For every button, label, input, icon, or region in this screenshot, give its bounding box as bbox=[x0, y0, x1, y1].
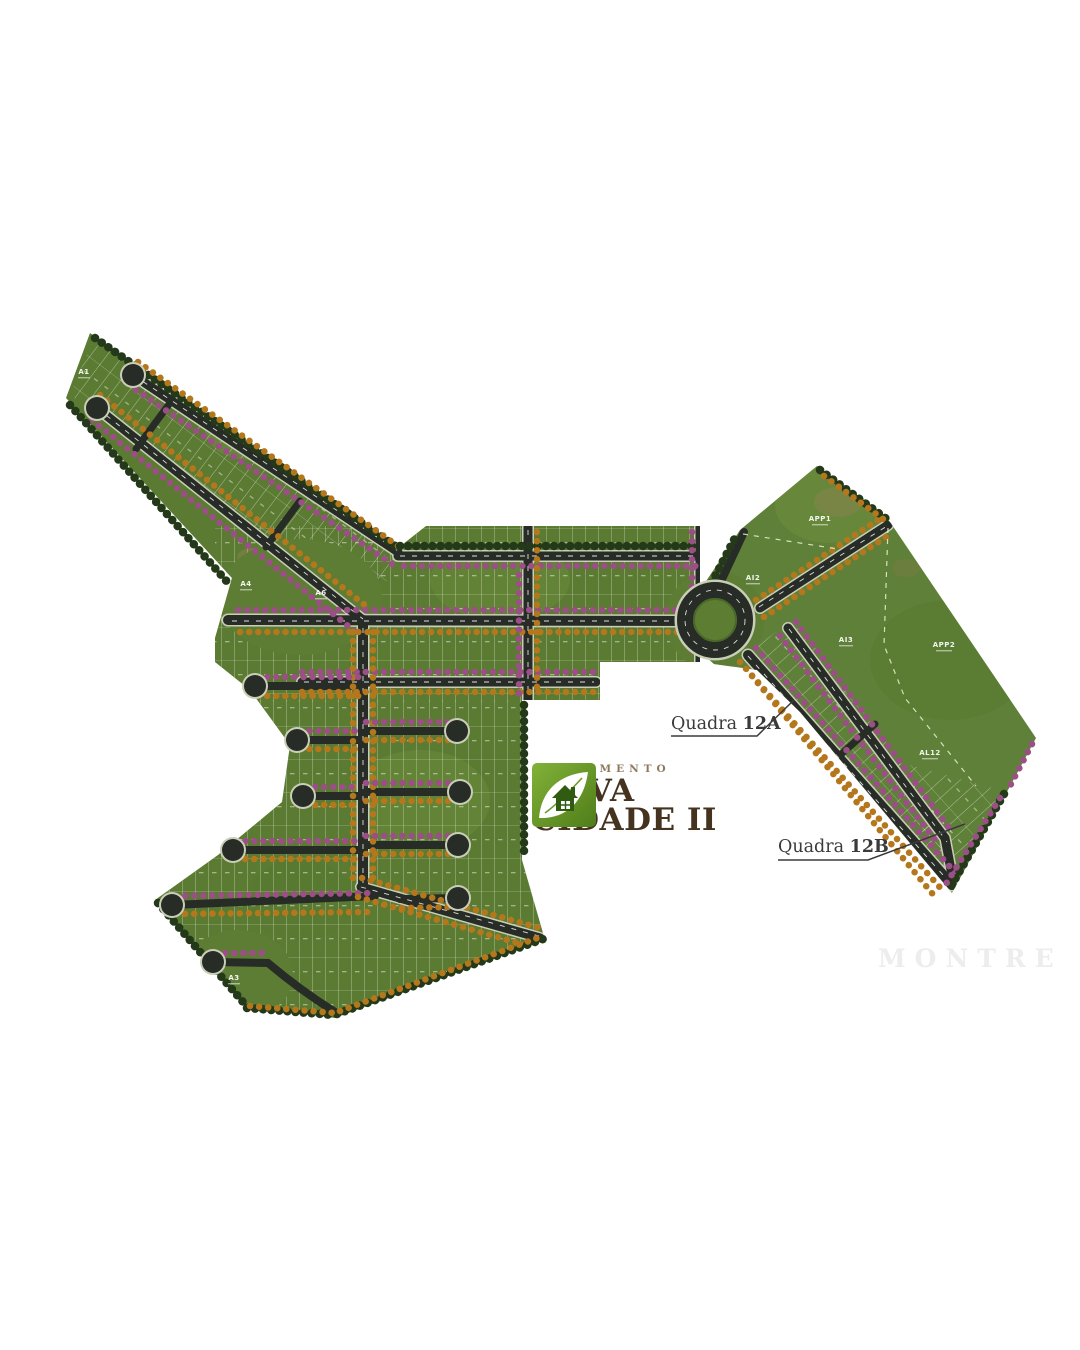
quadra-12b-label: Quadra bbox=[778, 837, 844, 857]
area-label: APP1 bbox=[809, 515, 832, 523]
svg-text:Quadra 12B: Quadra 12B bbox=[778, 837, 889, 857]
area-label: APP2 bbox=[933, 641, 956, 649]
area-label: A1 bbox=[78, 368, 89, 376]
roundabout bbox=[677, 582, 753, 658]
logo: LOTEAMENTO NOVA CIDADE II bbox=[532, 763, 717, 834]
svg-text:Quadra 12A: Quadra 12A bbox=[671, 714, 781, 734]
site-plan-map: APP1 AI2 AI3 APP2 AL12 AI13 A4 A6 A3 A1 … bbox=[0, 0, 1080, 1350]
area-label: AI2 bbox=[746, 574, 760, 582]
area-label: A3 bbox=[228, 974, 239, 982]
area-label: A6 bbox=[315, 589, 326, 597]
area-label: AI13 bbox=[1019, 796, 1039, 804]
area-label: AI3 bbox=[839, 636, 853, 644]
site-plan-page: APP1 AI2 AI3 APP2 AL12 AI13 A4 A6 A3 A1 … bbox=[0, 0, 1080, 1350]
house-leaf-logo-icon bbox=[532, 763, 596, 827]
watermark: MONTRE bbox=[878, 944, 1063, 973]
quadra-12a-label: Quadra bbox=[671, 714, 737, 734]
area-label: A4 bbox=[240, 580, 251, 588]
area-label: AL12 bbox=[919, 749, 941, 757]
